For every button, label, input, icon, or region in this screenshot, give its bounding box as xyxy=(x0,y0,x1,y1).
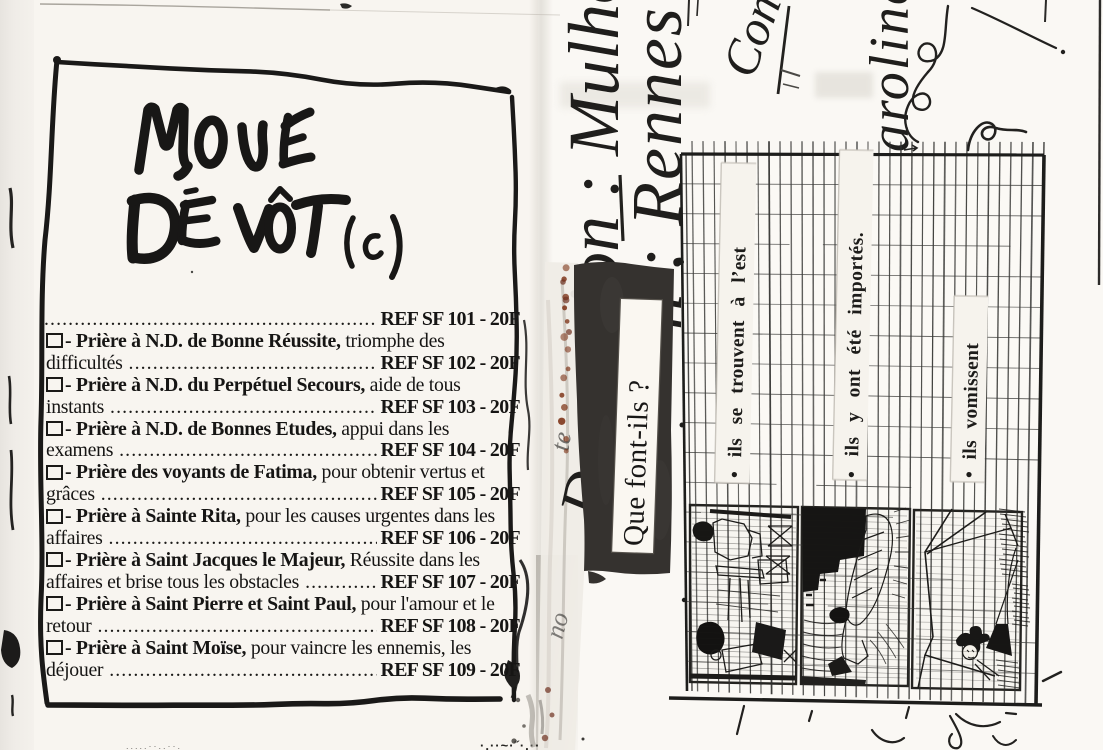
svg-text:.....··..··.: .....··..··. xyxy=(126,741,182,750)
svg-text:aroline: aroline xyxy=(859,0,921,152)
svg-text:• ils vomissent: • ils vomissent xyxy=(959,342,983,478)
svg-text:Que font-ils ?: Que font-ils ? xyxy=(618,379,656,546)
